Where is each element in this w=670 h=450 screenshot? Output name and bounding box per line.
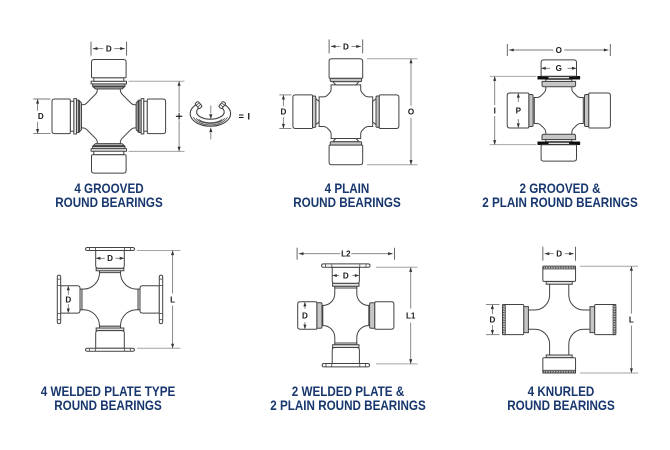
svg-text:O: O — [408, 108, 414, 117]
svg-text:L: L — [170, 295, 175, 304]
svg-text:P: P — [516, 106, 522, 115]
svg-text:D: D — [302, 311, 308, 320]
svg-text:G: G — [556, 64, 562, 73]
svg-text:L: L — [629, 316, 634, 325]
svg-text:D: D — [280, 108, 286, 117]
svg-text:D: D — [106, 45, 112, 54]
svg-text:L1: L1 — [406, 312, 416, 321]
svg-text:I: I — [247, 112, 250, 122]
svg-text:=: = — [239, 112, 244, 122]
svg-text:D: D — [107, 254, 113, 263]
svg-text:D: D — [343, 271, 349, 280]
svg-text:D: D — [556, 250, 562, 259]
svg-text:I: I — [494, 106, 496, 115]
svg-text:D: D — [489, 316, 495, 325]
svg-text:O: O — [556, 46, 562, 55]
svg-text:L2: L2 — [341, 250, 351, 259]
svg-text:D: D — [65, 295, 71, 304]
svg-text:D: D — [343, 42, 349, 51]
svg-text:D: D — [38, 112, 44, 121]
